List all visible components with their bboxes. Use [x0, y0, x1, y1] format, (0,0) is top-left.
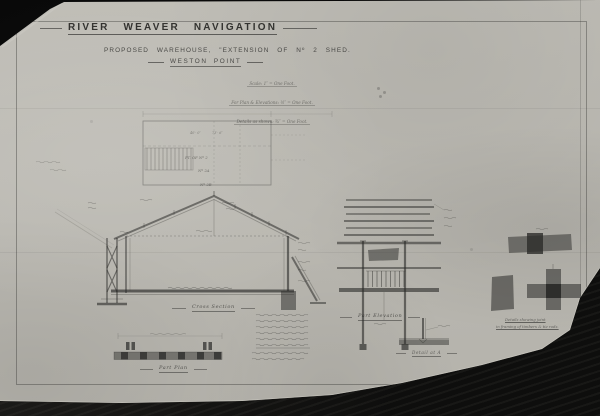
- photograph-of-drawing: RIVER WEAVER NAVIGATION PROPOSED WAREHOU…: [0, 0, 600, 416]
- paper-edge-highlight: [2, 3, 62, 47]
- margin-scribbles: [36, 161, 66, 171]
- part-elevation-drawing: [337, 200, 456, 350]
- notes-block-illegible: [252, 314, 310, 360]
- drawing-linework: [0, 0, 600, 416]
- plan-view-drawing: [143, 111, 332, 185]
- cross-section-drawing: [55, 191, 326, 310]
- joint-details-drawing: [491, 229, 581, 312]
- detail-a-drawing: [399, 318, 450, 345]
- part-plan-drawing: [114, 333, 222, 360]
- drawing-sheet: RIVER WEAVER NAVIGATION PROPOSED WAREHOU…: [0, 0, 600, 416]
